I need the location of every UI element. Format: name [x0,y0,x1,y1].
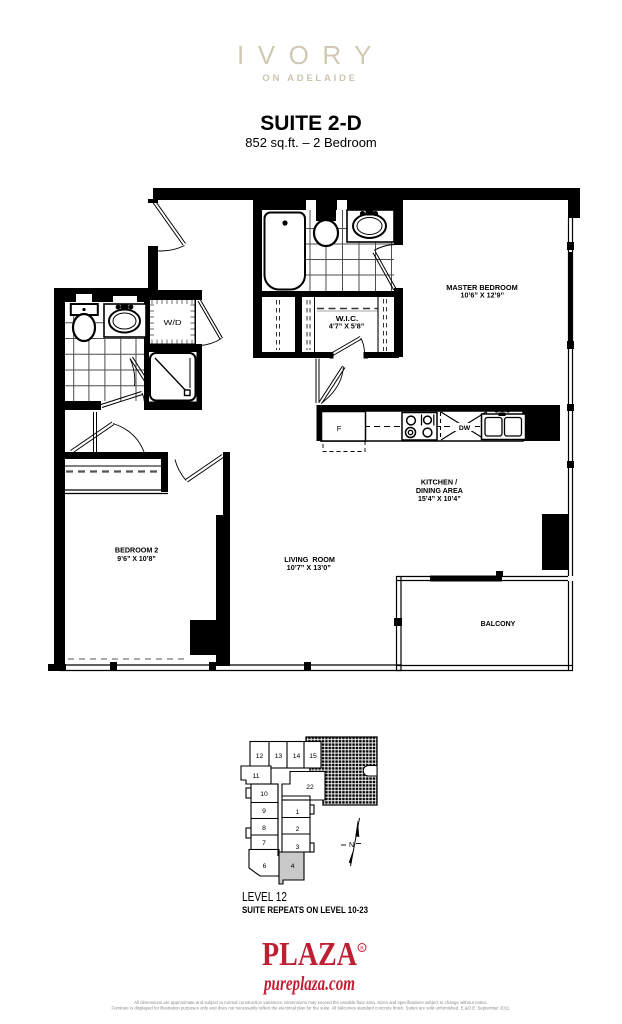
svg-text:Furniture is displayed for ill: Furniture is displayed for illustration … [111,1006,510,1011]
svg-text:F: F [337,424,342,433]
svg-text:PLAZA: PLAZA [262,936,357,973]
svg-text:11: 11 [252,773,259,780]
svg-text:7: 7 [262,840,266,847]
svg-text:4’7” X 5’8”: 4’7” X 5’8” [329,322,365,331]
svg-text:4: 4 [291,863,295,870]
svg-text:12: 12 [256,753,264,760]
svg-text:9: 9 [262,808,266,815]
svg-text:15: 15 [309,753,317,760]
svg-text:R: R [360,946,364,952]
svg-text:10’7” X 13’0”: 10’7” X 13’0” [287,563,332,572]
svg-text:IVORY: IVORY [237,40,385,70]
svg-text:SUITE REPEATS ON LEVEL 10-23: SUITE REPEATS ON LEVEL 10-23 [242,905,368,915]
svg-text:3: 3 [296,844,300,851]
svg-text:852 sq.ft. – 2 Bedroom: 852 sq.ft. – 2 Bedroom [245,135,377,150]
svg-text:pureplaza.com: pureplaza.com [262,974,355,995]
svg-text:22: 22 [306,784,314,791]
svg-text:8: 8 [262,825,266,832]
svg-text:2: 2 [296,826,300,833]
svg-text:15’4” X 10’4”: 15’4” X 10’4” [418,494,461,503]
svg-text:W/D: W/D [164,318,182,327]
svg-text:6: 6 [263,863,267,870]
svg-text:BALCONY: BALCONY [481,619,516,628]
svg-text:SUITE 2-D: SUITE 2-D [260,112,362,135]
svg-text:9’6” X 10’8”: 9’6” X 10’8” [117,554,156,563]
svg-text:LEVEL 12: LEVEL 12 [242,890,287,904]
svg-text:13: 13 [275,753,283,760]
svg-text:N: N [349,842,354,849]
svg-text:All dimensions are approximate: All dimensions are approximate and subje… [134,1000,488,1005]
svg-text:1: 1 [296,809,300,816]
svg-text:10’6” X 12’9”: 10’6” X 12’9” [461,291,505,300]
svg-text:DW: DW [459,425,471,432]
svg-text:ON ADELAIDE: ON ADELAIDE [262,73,357,84]
svg-text:14: 14 [293,753,301,760]
svg-text:10: 10 [260,791,268,798]
